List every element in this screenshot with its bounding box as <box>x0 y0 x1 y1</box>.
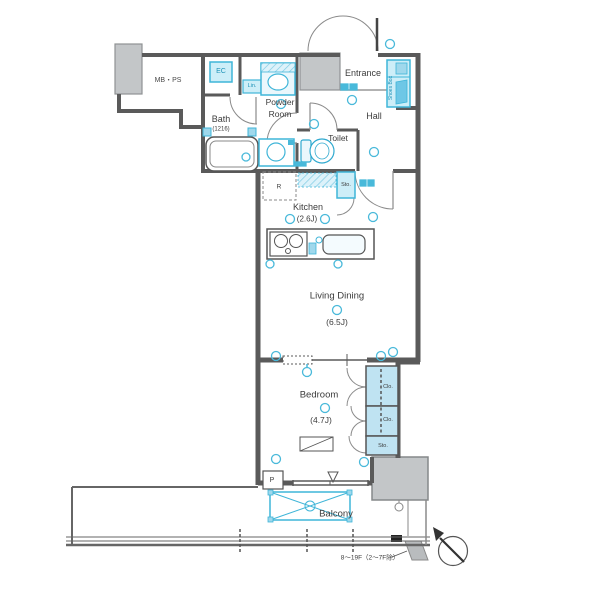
room-label-bedroom: Bedroom <box>300 391 339 402</box>
room-label-mbps: MB・PS <box>155 77 182 85</box>
light-fixture-mark <box>395 500 403 511</box>
label-closet-a: Clo. <box>383 384 393 390</box>
label-pipe-shaft: P <box>270 477 275 485</box>
label-bedroom-size: (4.7J) <box>310 416 332 426</box>
floor-plan-drawing <box>0 0 602 602</box>
room-label-toilet: Toilet <box>328 134 348 144</box>
kitchen-counter <box>267 229 374 259</box>
bedroom-closet <box>366 366 398 455</box>
washer-pan <box>259 139 294 166</box>
room-label-balcony: Balcony <box>319 510 353 521</box>
label-living-size: (6.5J) <box>326 318 348 328</box>
label-storage-bedroom: Sto. <box>378 443 388 449</box>
label-shoes-box: Shoes Box <box>389 76 395 100</box>
floor-note: 8〜19F（2〜7F除） <box>341 554 400 561</box>
room-label-living: Living Dining <box>310 292 364 303</box>
label-bath-size: (1216) <box>212 127 229 134</box>
label-storage-hall: Sto. <box>341 182 351 188</box>
room-label-linen: Lin. <box>248 83 257 89</box>
vanity-sink <box>261 63 295 95</box>
floor-plan-page: MB・PS EC Lin. Powder Room Entrance Shoes… <box>0 0 602 602</box>
room-label-powder-2: Room <box>269 110 292 120</box>
room-label-bath: Bath <box>212 114 231 124</box>
bedroom-counter <box>300 437 333 451</box>
floor-hatch-area <box>298 173 336 187</box>
compass-icon <box>433 527 468 566</box>
label-kitchen-size: (2.6J) <box>297 214 317 223</box>
room-label-kitchen: Kitchen <box>293 202 323 212</box>
room-label-ec: EC <box>216 68 226 76</box>
room-label-hall: Hall <box>366 111 382 121</box>
label-refrigerator: R <box>277 183 282 190</box>
label-closet-b: Clo. <box>383 417 393 423</box>
room-label-powder-1: Powder <box>266 98 295 108</box>
room-label-entrance: Entrance <box>345 68 381 78</box>
bathtub <box>203 128 258 171</box>
